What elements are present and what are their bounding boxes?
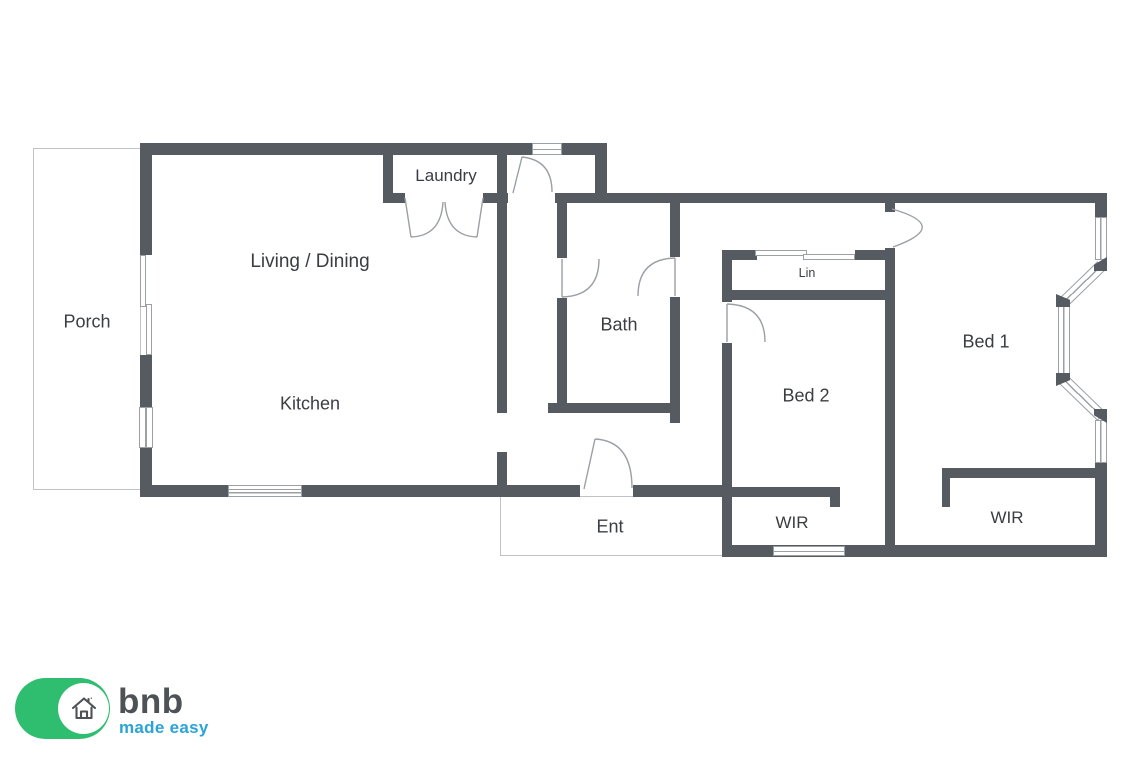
sliding-door <box>146 304 152 355</box>
sliding-door <box>803 254 855 260</box>
door-arc-laundry-right <box>445 198 483 237</box>
room-label-porch: Porch <box>63 312 110 333</box>
door-arc-laundry-left <box>405 198 443 237</box>
room-label-wir-bed1: WIR <box>990 508 1023 528</box>
wall-segment <box>830 497 840 507</box>
bay-window-pane <box>1058 302 1070 379</box>
wall-segment <box>1095 462 1107 557</box>
wall-segment <box>732 487 840 497</box>
wall-segment <box>722 290 890 300</box>
room-label-bed2: Bed 2 <box>782 386 829 407</box>
wall-segment <box>633 485 723 497</box>
room-label-ent: Ent <box>596 517 623 538</box>
wall-segment <box>1095 193 1107 218</box>
window <box>228 485 302 497</box>
door-arcs <box>0 0 1140 760</box>
room-label-kitchen: Kitchen <box>280 394 340 415</box>
door-arc-bed2 <box>727 304 765 342</box>
door-arc-vestibule <box>513 157 552 193</box>
wall-segment <box>885 203 895 212</box>
logo-brand-text: bnb <box>118 682 184 722</box>
door-arc-entry <box>584 439 632 489</box>
wall-segment <box>555 193 1107 203</box>
wall-segment <box>670 203 680 257</box>
wall-segment <box>140 355 152 407</box>
wall-segment <box>557 298 567 403</box>
wall-segment <box>942 478 950 507</box>
door-arc-bed1 <box>892 209 922 247</box>
window <box>773 546 845 556</box>
wall-segment <box>548 403 680 413</box>
wall-segment <box>140 143 152 255</box>
wall-segment <box>140 485 228 497</box>
wall-segment <box>497 155 507 413</box>
door-arc-bath-east <box>638 258 675 296</box>
room-label-wir-bed2: WIR <box>775 513 808 533</box>
floor-plan: Porch Living / Dining Laundry Kitchen Ba… <box>0 0 1140 760</box>
room-label-lin: Lin <box>799 266 816 280</box>
wall-segment <box>383 193 405 203</box>
logo-tagline-text: made easy <box>119 718 209 738</box>
wall-segment <box>942 468 1103 478</box>
wall-segment <box>722 250 757 260</box>
room-label-laundry: Laundry <box>415 166 476 186</box>
wall-segment <box>557 203 567 258</box>
room-label-living: Living / Dining <box>250 251 369 273</box>
bay-window-pane <box>1095 420 1107 463</box>
logo-circle <box>58 683 109 734</box>
wall-segment <box>885 248 895 557</box>
room-label-bed1: Bed 1 <box>962 332 1009 353</box>
wall-segment <box>302 485 580 497</box>
sliding-door <box>755 250 807 256</box>
window <box>139 407 153 448</box>
wall-segment <box>497 452 507 485</box>
door-arc-bath-west <box>562 259 599 297</box>
room-label-bath: Bath <box>600 315 637 336</box>
bay-window-pane <box>1095 217 1107 260</box>
wall-segment <box>722 343 732 557</box>
sliding-door <box>140 255 146 307</box>
house-icon <box>68 693 100 724</box>
window <box>532 143 562 155</box>
